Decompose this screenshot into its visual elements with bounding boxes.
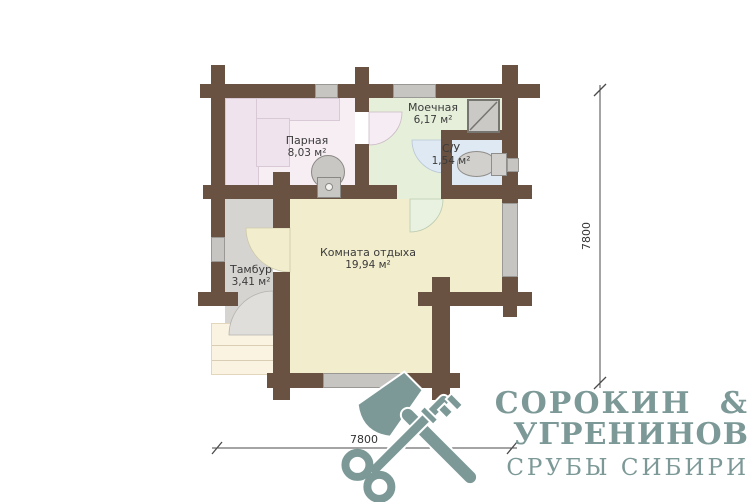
toilet-wall-stub: [507, 158, 519, 172]
logo-tagline: СРУБЫ СИБИРИ: [470, 453, 749, 483]
logo-text-block: СОРОКИН & УГРЕНИНОВ СРУБЫ СИБИРИ: [470, 388, 752, 483]
wall-right-exterior-lower: [502, 277, 518, 306]
label-moechnaya: Моечная 6,17 м²: [383, 101, 483, 127]
room-name: Комната отдыха: [293, 246, 443, 259]
room-area: 3,41 м²: [201, 276, 301, 289]
wall-tambur-right-upper: [273, 172, 290, 228]
axe-handle: [398, 405, 480, 487]
room-area: 19,94 м²: [293, 259, 443, 272]
room-name: Парная: [257, 134, 357, 147]
window-moechnaya: [393, 84, 436, 98]
room-area: 6,17 м²: [383, 114, 483, 127]
label-parnaya: Парная 8,03 м²: [257, 134, 357, 160]
room-name: Моечная: [383, 101, 483, 114]
room-area: 8,03 м²: [257, 147, 357, 160]
label-komnata: Комната отдыха 19,94 м²: [293, 246, 443, 272]
room-name: С/У: [401, 142, 501, 155]
logo-line2: УГРЕНИНОВ: [470, 419, 749, 451]
wall-parnaya-moechnaya-top: [355, 67, 369, 112]
window-parnaya: [315, 84, 338, 98]
room-name: Тамбур: [201, 263, 301, 276]
label-tambur: Тамбур 3,41 м²: [201, 263, 301, 289]
wall-parnaya-moechnaya-bottom: [355, 144, 369, 199]
stove-firebox-hole: [325, 183, 333, 191]
wall-right-exterior-upper: [502, 65, 518, 203]
wall-top: [200, 84, 540, 98]
room-area: 1,54 м²: [401, 155, 501, 168]
label-su: С/У 1,54 м²: [401, 142, 501, 168]
wall-right-log-stub: [503, 306, 517, 317]
window-tambur: [211, 237, 225, 262]
floor-plan-canvas: 7800 7800 Парная 8,03 м² Моечная 6: [0, 0, 755, 502]
wall-su-bottom: [441, 185, 532, 199]
wall-tambur-right-lower: [273, 272, 290, 400]
logo-line1: СОРОКИН &: [470, 388, 749, 419]
dimension-height-label: 7800: [580, 222, 593, 250]
window-komnata-right: [502, 203, 518, 277]
